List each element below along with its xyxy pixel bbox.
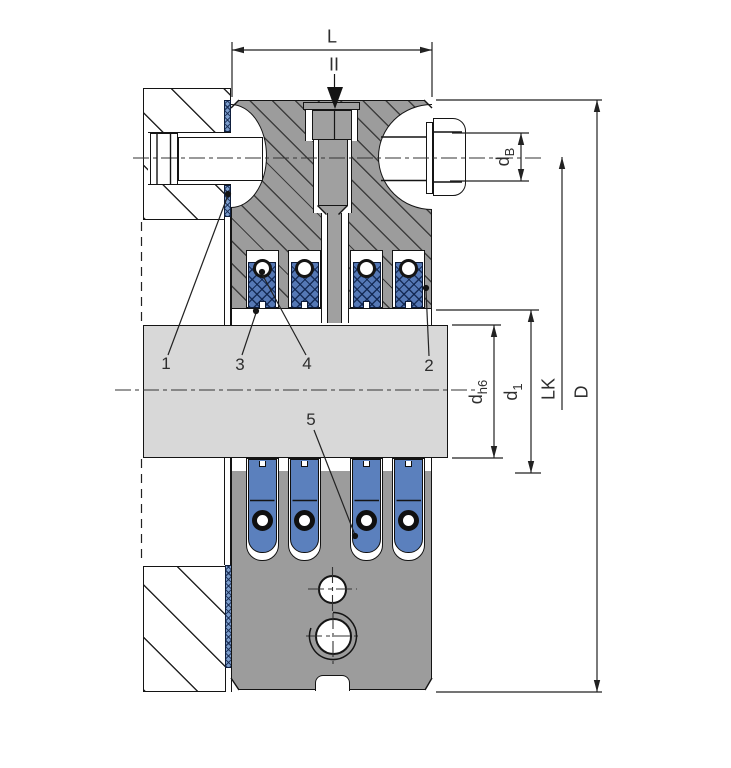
coupling-cross-section-drawing: L II dB dh6 d1 LK D 1 2 3 4 5 [0, 0, 731, 768]
dim-d1-base: d [501, 391, 521, 401]
callout-1: 1 [161, 354, 170, 374]
callout-2: 2 [424, 356, 433, 376]
dim-label-dh6: dh6 [466, 380, 490, 404]
callout-4: 4 [302, 354, 311, 374]
dim-dh6-base: d [466, 394, 486, 404]
dim-label-d1: d1 [501, 383, 525, 400]
dim-label-D: D [572, 386, 593, 399]
callout-3: 3 [235, 355, 244, 375]
dim-dB-sub: B [502, 148, 517, 157]
dim-dB-base: d [493, 156, 513, 166]
callout-5: 5 [306, 410, 315, 430]
dim-label-LK: LK [539, 378, 560, 400]
dim-label-L: L [327, 27, 337, 48]
section-label-II: II [329, 55, 339, 76]
labels-layer: L II dB dh6 d1 LK D 1 2 3 4 5 [0, 0, 731, 768]
dim-label-dB: dB [493, 148, 517, 167]
dim-d1-sub: 1 [510, 383, 525, 390]
dim-dh6-sub: h6 [475, 380, 490, 394]
